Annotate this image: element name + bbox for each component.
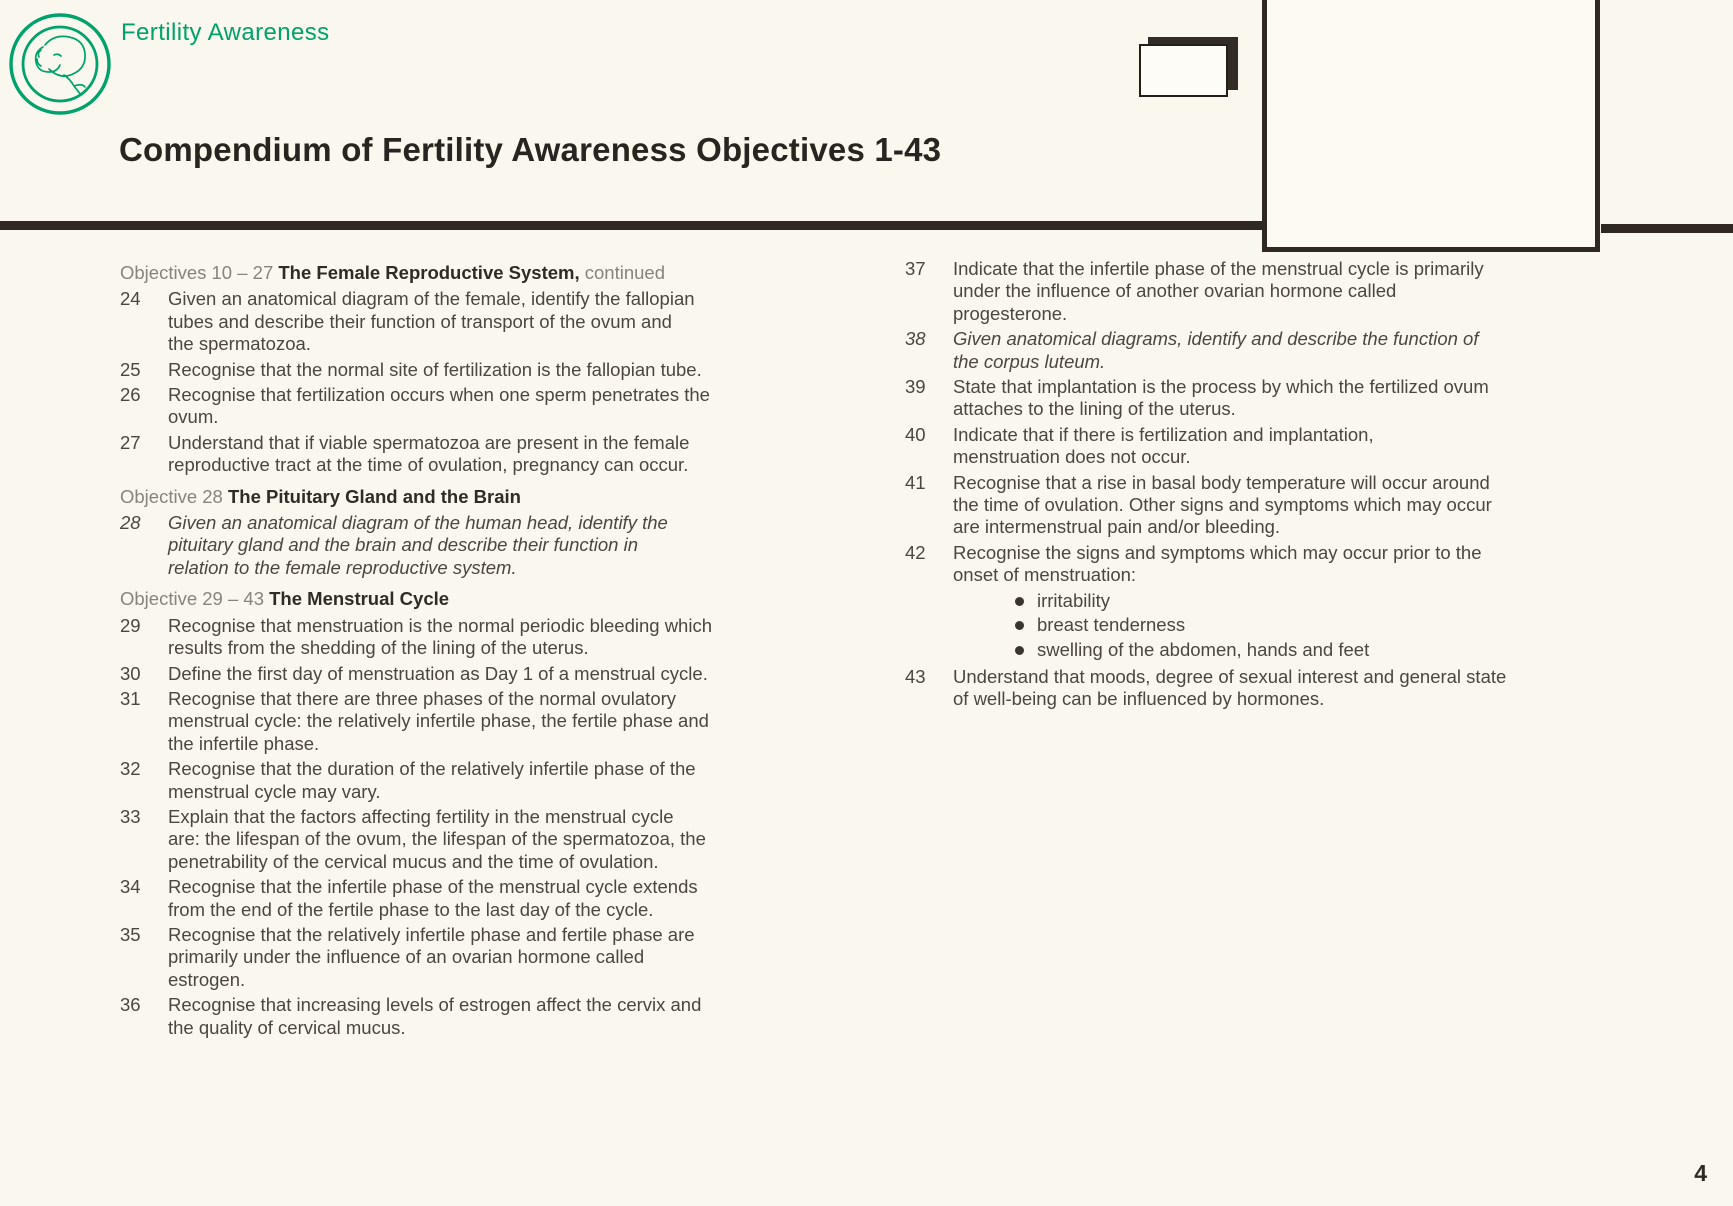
objective-number: 29 bbox=[120, 615, 168, 660]
objective-item: 40Indicate that if there is fertilizatio… bbox=[905, 424, 1625, 469]
objective-number: 43 bbox=[905, 666, 953, 711]
objective-number: 39 bbox=[905, 376, 953, 421]
objective-text: Recognise that the infertile phase of th… bbox=[168, 876, 698, 921]
bullet-label: swelling of the abdomen, hands and feet bbox=[1037, 639, 1369, 661]
objective-number: 38 bbox=[905, 328, 953, 373]
objective-body: Indicate that if there is fertilization … bbox=[953, 424, 1374, 469]
objective-number: 27 bbox=[120, 432, 168, 477]
objective-item: 30Define the first day of menstruation a… bbox=[120, 663, 820, 685]
objective-item: 42Recognise the signs and symptoms which… bbox=[905, 542, 1625, 663]
objective-number: 24 bbox=[120, 288, 168, 355]
bullet-list: irritabilitybreast tendernessswelling of… bbox=[953, 590, 1482, 661]
objective-text: Recognise that the normal site of fertil… bbox=[168, 359, 702, 381]
section-heading-range: Objective 28 bbox=[120, 486, 228, 507]
objective-text: Recognise the signs and symptoms which m… bbox=[953, 542, 1482, 587]
divider-bar-right bbox=[1601, 224, 1733, 233]
objective-text: Recognise that fertilization occurs when… bbox=[168, 384, 710, 429]
objective-number: 41 bbox=[905, 472, 953, 539]
objective-number: 37 bbox=[905, 258, 953, 325]
objective-item: 31Recognise that there are three phases … bbox=[120, 688, 820, 755]
section-heading: Objective 28 The Pituitary Gland and the… bbox=[120, 486, 820, 508]
objective-body: Recognise that fertilization occurs when… bbox=[168, 384, 710, 429]
objective-text: Indicate that the infertile phase of the… bbox=[953, 258, 1484, 325]
objective-body: Define the first day of menstruation as … bbox=[168, 663, 708, 685]
objective-item: 28Given an anatomical diagram of the hum… bbox=[120, 512, 820, 579]
page-number: 4 bbox=[1694, 1160, 1707, 1187]
objective-text: Recognise that a rise in basal body temp… bbox=[953, 472, 1492, 539]
objective-item: 36Recognise that increasing levels of es… bbox=[120, 994, 820, 1039]
bullet-label: breast tenderness bbox=[1037, 614, 1185, 636]
bullet-item: irritability bbox=[1015, 590, 1482, 612]
objective-text: Understand that if viable spermatozoa ar… bbox=[168, 432, 689, 477]
objective-item: 41Recognise that a rise in basal body te… bbox=[905, 472, 1625, 539]
objective-body: Recognise that the relatively infertile … bbox=[168, 924, 695, 991]
section-heading-title: The Pituitary Gland and the Brain bbox=[228, 486, 521, 507]
divider-bar-left bbox=[0, 221, 1263, 230]
objective-item: 24Given an anatomical diagram of the fem… bbox=[120, 288, 820, 355]
objective-number: 31 bbox=[120, 688, 168, 755]
objective-body: Given anatomical diagrams, identify and … bbox=[953, 328, 1479, 373]
objective-text: Recognise that there are three phases of… bbox=[168, 688, 709, 755]
objective-number: 28 bbox=[120, 512, 168, 579]
objective-item: 25Recognise that the normal site of fert… bbox=[120, 359, 820, 381]
fertility-awareness-logo-icon bbox=[6, 8, 114, 118]
objective-item: 37Indicate that the infertile phase of t… bbox=[905, 258, 1625, 325]
section-heading-title: The Female Reproductive System, bbox=[278, 262, 579, 283]
bullet-item: breast tenderness bbox=[1015, 614, 1482, 636]
bullet-label: irritability bbox=[1037, 590, 1110, 612]
objective-body: State that implantation is the process b… bbox=[953, 376, 1489, 421]
section-heading-range: Objective 29 – 43 bbox=[120, 588, 269, 609]
bullet-item: swelling of the abdomen, hands and feet bbox=[1015, 639, 1482, 661]
objective-item: 26Recognise that fertilization occurs wh… bbox=[120, 384, 820, 429]
objective-body: Recognise that the normal site of fertil… bbox=[168, 359, 702, 381]
objective-number: 34 bbox=[120, 876, 168, 921]
objective-text: Understand that moods, degree of sexual … bbox=[953, 666, 1506, 711]
objectives-column-right: 37Indicate that the infertile phase of t… bbox=[905, 258, 1625, 714]
objective-body: Recognise the signs and symptoms which m… bbox=[953, 542, 1482, 663]
bullet-dot-icon bbox=[1015, 621, 1024, 630]
section-heading-title: The Menstrual Cycle bbox=[269, 588, 449, 609]
objective-number: 33 bbox=[120, 806, 168, 873]
objective-item: 35Recognise that the relatively infertil… bbox=[120, 924, 820, 991]
objectives-column-left: Objectives 10 – 27 The Female Reproducti… bbox=[120, 262, 820, 1042]
document-page: Fertility Awareness Compendium of Fertil… bbox=[0, 0, 1733, 1206]
objective-text: Indicate that if there is fertilization … bbox=[953, 424, 1374, 469]
objective-body: Understand that if viable spermatozoa ar… bbox=[168, 432, 689, 477]
objective-body: Indicate that the infertile phase of the… bbox=[953, 258, 1484, 325]
objective-item: 38Given anatomical diagrams, identify an… bbox=[905, 328, 1625, 373]
section-heading-range: Objectives 10 – 27 bbox=[120, 262, 278, 283]
objective-text: Recognise that the duration of the relat… bbox=[168, 758, 696, 803]
section-heading: Objectives 10 – 27 The Female Reproducti… bbox=[120, 262, 820, 284]
objective-item: 33Explain that the factors affecting fer… bbox=[120, 806, 820, 873]
objective-number: 25 bbox=[120, 359, 168, 381]
objective-item: 39State that implantation is the process… bbox=[905, 376, 1625, 421]
stacked-document-icon bbox=[1139, 44, 1228, 97]
objective-text: Given an anatomical diagram of the femal… bbox=[168, 288, 695, 355]
objective-body: Recognise that the duration of the relat… bbox=[168, 758, 696, 803]
objective-number: 26 bbox=[120, 384, 168, 429]
section-heading-continued: continued bbox=[580, 262, 665, 283]
objective-body: Recognise that menstruation is the norma… bbox=[168, 615, 712, 660]
objective-body: Recognise that there are three phases of… bbox=[168, 688, 709, 755]
objective-text: Explain that the factors affecting ferti… bbox=[168, 806, 706, 873]
corner-box bbox=[1262, 0, 1600, 252]
objective-number: 40 bbox=[905, 424, 953, 469]
objective-text: Recognise that the relatively infertile … bbox=[168, 924, 695, 991]
objective-item: 29Recognise that menstruation is the nor… bbox=[120, 615, 820, 660]
objective-body: Understand that moods, degree of sexual … bbox=[953, 666, 1506, 711]
objective-text: Given an anatomical diagram of the human… bbox=[168, 512, 668, 579]
objective-number: 30 bbox=[120, 663, 168, 685]
objective-text: Recognise that menstruation is the norma… bbox=[168, 615, 712, 660]
objective-text: Define the first day of menstruation as … bbox=[168, 663, 708, 685]
objective-body: Recognise that a rise in basal body temp… bbox=[953, 472, 1492, 539]
objective-item: 34Recognise that the infertile phase of … bbox=[120, 876, 820, 921]
objective-text: State that implantation is the process b… bbox=[953, 376, 1489, 421]
page-title: Compendium of Fertility Awareness Object… bbox=[119, 131, 941, 169]
bullet-dot-icon bbox=[1015, 646, 1024, 655]
objective-number: 36 bbox=[120, 994, 168, 1039]
objective-text: Given anatomical diagrams, identify and … bbox=[953, 328, 1479, 373]
objective-item: 27Understand that if viable spermatozoa … bbox=[120, 432, 820, 477]
objective-number: 35 bbox=[120, 924, 168, 991]
objective-body: Explain that the factors affecting ferti… bbox=[168, 806, 706, 873]
objective-body: Recognise that increasing levels of estr… bbox=[168, 994, 701, 1039]
objective-body: Recognise that the infertile phase of th… bbox=[168, 876, 698, 921]
brand-title: Fertility Awareness bbox=[121, 19, 330, 47]
objective-number: 32 bbox=[120, 758, 168, 803]
objective-item: 43Understand that moods, degree of sexua… bbox=[905, 666, 1625, 711]
objective-body: Given an anatomical diagram of the human… bbox=[168, 512, 668, 579]
bullet-dot-icon bbox=[1015, 597, 1024, 606]
objective-text: Recognise that increasing levels of estr… bbox=[168, 994, 701, 1039]
objective-body: Given an anatomical diagram of the femal… bbox=[168, 288, 695, 355]
objective-item: 32Recognise that the duration of the rel… bbox=[120, 758, 820, 803]
section-heading: Objective 29 – 43 The Menstrual Cycle bbox=[120, 588, 820, 610]
objective-number: 42 bbox=[905, 542, 953, 663]
